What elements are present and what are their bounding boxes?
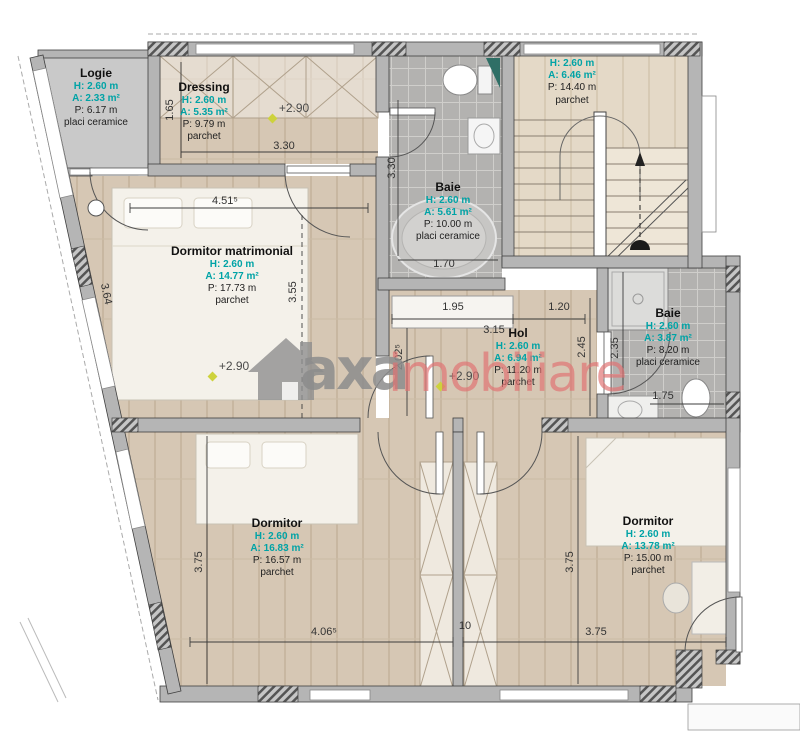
washbasin-icon	[468, 118, 500, 154]
bed-matrimonial	[112, 188, 308, 400]
window	[728, 468, 740, 592]
stairs-divider	[594, 112, 606, 256]
window	[196, 44, 354, 54]
window	[702, 96, 716, 232]
wardrobe-dressing	[160, 56, 378, 118]
bed-dormitor-2	[586, 438, 732, 546]
window	[524, 44, 660, 54]
floor-corridor	[360, 418, 542, 432]
window	[310, 690, 370, 700]
bathtub-icon	[392, 198, 496, 278]
shower-icon	[608, 268, 668, 330]
hol-cabinet	[392, 296, 513, 328]
wall-marker	[88, 200, 104, 216]
wardrobe-left	[420, 462, 453, 688]
wardrobe-right	[464, 462, 497, 688]
floor-plan: Logie H: 2.60 m A: 2.33 m² P: 6.17 m pla…	[0, 0, 800, 742]
window	[500, 690, 628, 700]
bed-dormitor-1	[196, 434, 358, 524]
floor-plan-graphics	[0, 0, 800, 742]
